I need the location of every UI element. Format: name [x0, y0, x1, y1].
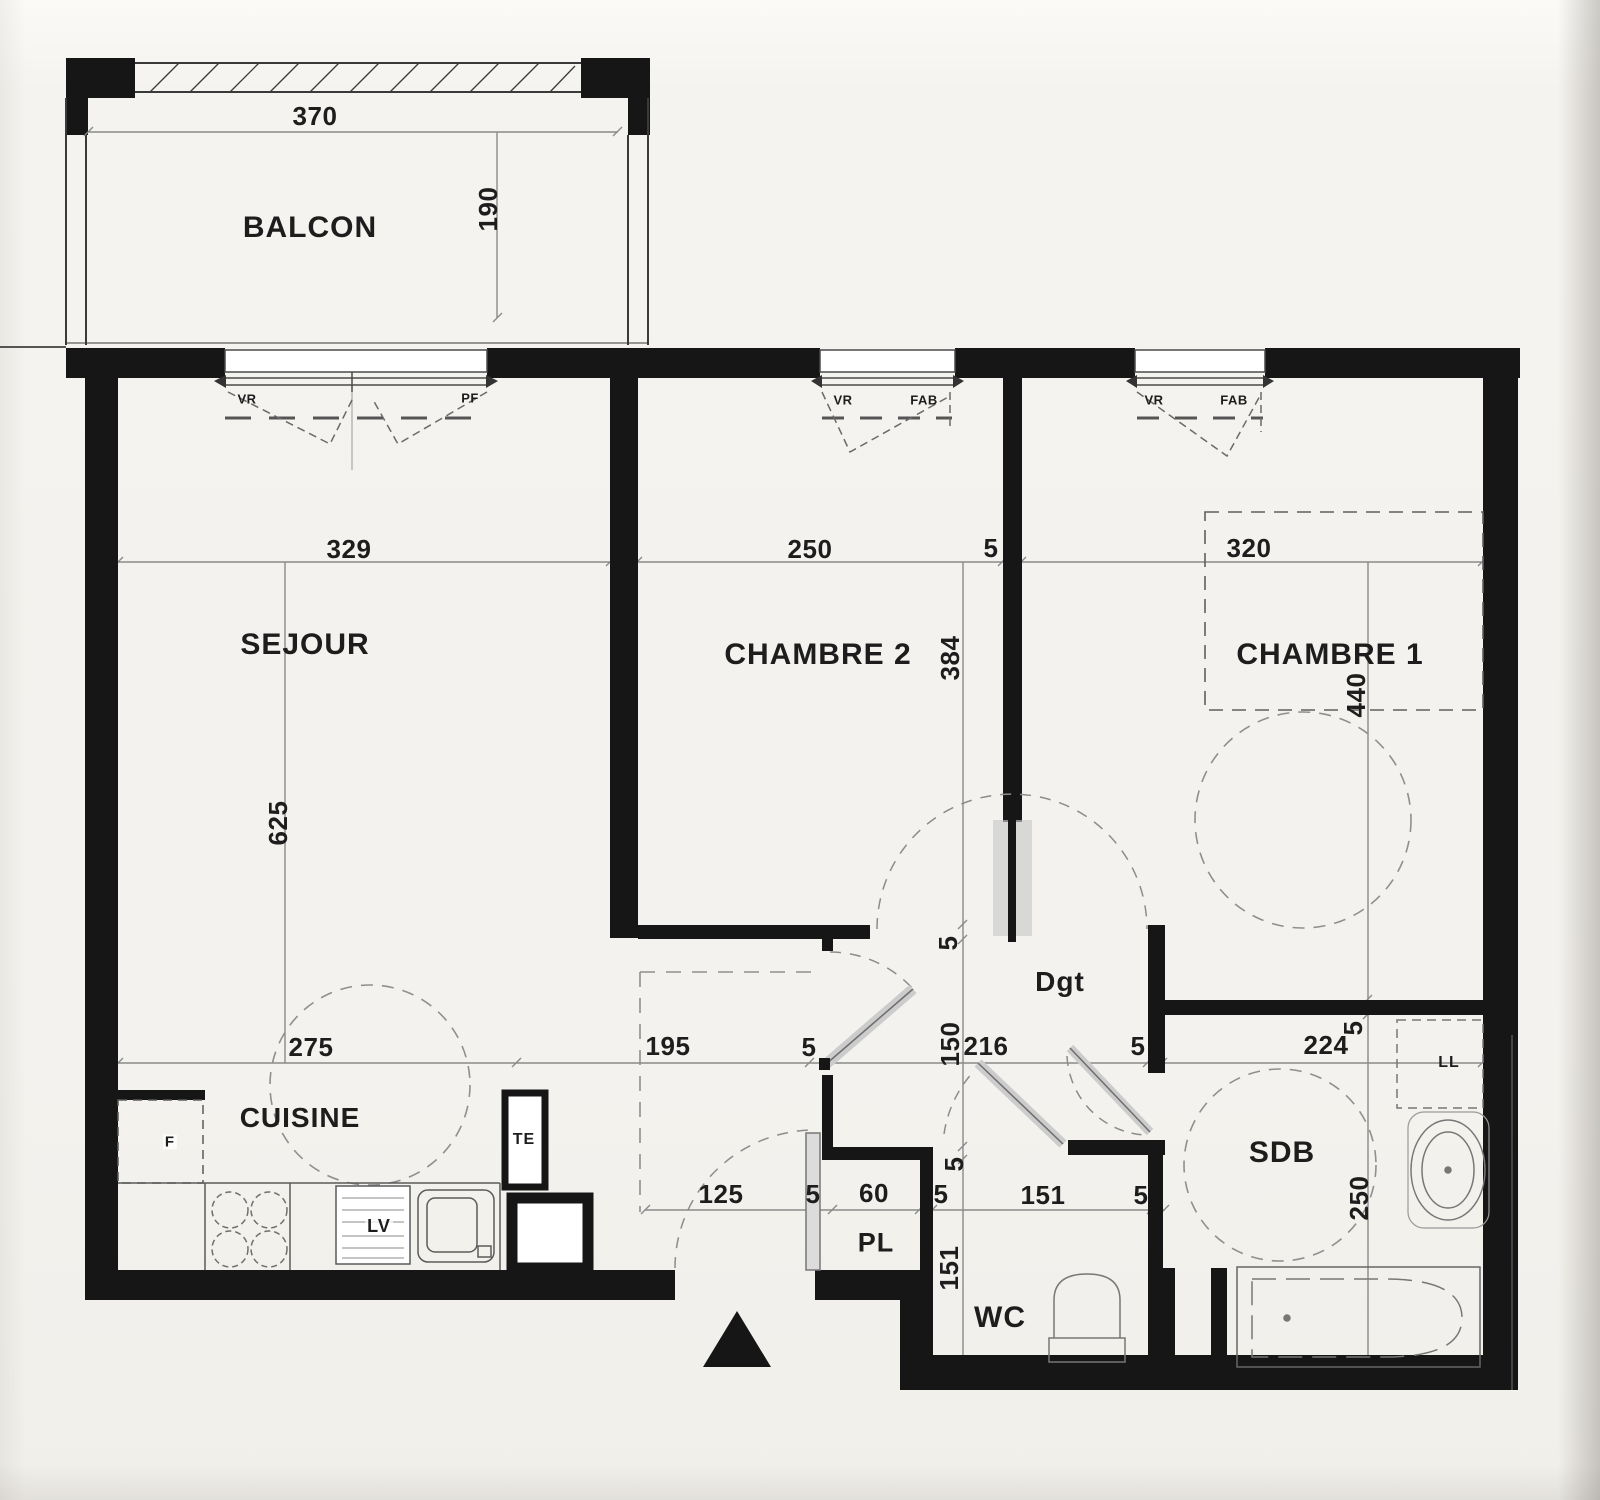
bathtub [1237, 1267, 1480, 1367]
dim-entry-wall: 5 [802, 1034, 817, 1060]
window-tag-chambre2-fab: FAB [910, 394, 938, 407]
dim-door-side-wall: 5 [806, 1181, 821, 1207]
kitchen-counter [118, 1183, 500, 1270]
door-wc [944, 1063, 1063, 1144]
wc-toilet [1049, 1274, 1125, 1362]
fridge-box [118, 1100, 203, 1183]
dim-hall-wall-top: 5 [935, 936, 961, 951]
entrance-arrow [703, 1311, 771, 1367]
door-sdb [1067, 1048, 1150, 1135]
dim-wc-width: 151 [1021, 1182, 1066, 1208]
dim-wc-side-wall: 5 [1134, 1182, 1149, 1208]
dim-sdb-width: 224 [1304, 1032, 1349, 1058]
dim-chambre2-width: 250 [788, 536, 833, 562]
room-label-chambre2: CHAMBRE 2 [724, 640, 911, 670]
window-tag-sejour-vr: VR [237, 393, 256, 406]
dim-sdb-depth: 250 [1346, 1176, 1372, 1221]
window-tag-chambre1-fab: FAB [1220, 394, 1248, 407]
dim-hall-wall-bottom: 5 [941, 1157, 967, 1172]
walls [66, 348, 1520, 1390]
dim-hall-depth: 150 [937, 1022, 963, 1067]
room-label-degagement: Dgt [1035, 968, 1085, 996]
room-label-balcon: BALCON [243, 213, 377, 243]
shaft-box [512, 1198, 588, 1268]
dimension-lines [84, 127, 1487, 1374]
dim-wall-ch2-ch1: 5 [984, 535, 999, 561]
entrance-door [675, 1130, 820, 1270]
dim-sejour-width: 329 [327, 536, 372, 562]
window-tag-chambre2-vr: VR [833, 394, 852, 407]
balcony-structure [66, 58, 650, 135]
room-label-placard: PL [858, 1230, 895, 1257]
dim-sejour-depth: 625 [265, 801, 291, 846]
dim-balcony-width: 370 [293, 103, 338, 129]
fixture-label-fridge: F [163, 1135, 177, 1150]
door-chambre2 [819, 952, 913, 1070]
dim-chambre1-width: 320 [1227, 535, 1272, 561]
dim-hall-width: 216 [964, 1033, 1009, 1059]
window-tag-chambre1-vr: VR [1144, 394, 1163, 407]
fixture-label-washing-machine: LL [1438, 1055, 1460, 1071]
dim-chambre1-depth: 440 [1343, 673, 1369, 718]
kitchen-sink [418, 1190, 494, 1262]
dim-entry-width: 195 [646, 1033, 691, 1059]
room-label-sejour: SEJOUR [240, 630, 369, 660]
floorplan-page: BALCON SEJOUR CHAMBRE 2 CHAMBRE 1 CUISIN… [0, 0, 1600, 1500]
room-label-chambre1: CHAMBRE 1 [1236, 640, 1423, 670]
fixture-label-dishwasher: LV [365, 1217, 393, 1235]
window-tag-sejour-pf: PF [461, 392, 479, 405]
hob-burners [212, 1192, 287, 1267]
dim-chambre2-depth: 384 [937, 636, 963, 681]
dim-door-width: 125 [699, 1181, 744, 1207]
dim-cuisine-width: 275 [289, 1034, 334, 1060]
dim-balcony-depth: 190 [475, 187, 501, 232]
room-label-wc: WC [974, 1303, 1026, 1333]
dim-wc-depth: 151 [936, 1246, 962, 1291]
floorplan-drawing [0, 0, 1600, 1500]
window-sejour [214, 350, 498, 444]
dim-pl-width: 60 [859, 1180, 889, 1206]
dim-ch1-floor-wall: 5 [1340, 1021, 1366, 1036]
dim-pl-side-wall: 5 [934, 1181, 949, 1207]
dim-hall-sdb-wall: 5 [1131, 1033, 1146, 1059]
balcony-railing [66, 63, 648, 345]
fixture-label-technical-duct: TE [513, 1132, 535, 1148]
room-label-sdb: SDB [1249, 1138, 1315, 1168]
room-label-cuisine: CUISINE [240, 1104, 361, 1132]
